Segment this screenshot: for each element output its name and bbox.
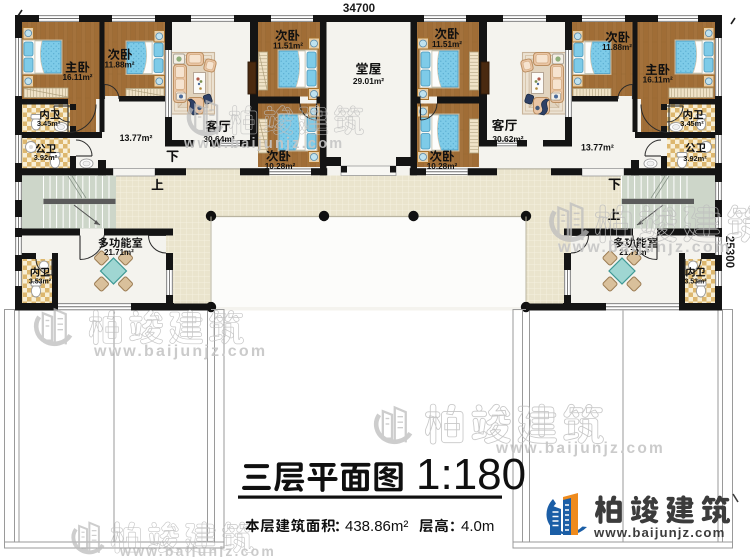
svg-text:13.77m²: 13.77m² [581, 143, 614, 153]
svg-text:3.45m²: 3.45m² [680, 119, 704, 128]
svg-text:13.77m²: 13.77m² [120, 133, 153, 143]
svg-text:3.92m²: 3.92m² [34, 153, 58, 162]
svg-text:www.baijunjz.com: www.baijunjz.com [593, 525, 725, 540]
svg-text:16.11m²: 16.11m² [643, 75, 673, 84]
svg-text:3.53m²: 3.53m² [684, 279, 707, 286]
svg-text:www.baijunjz.com: www.baijunjz.com [119, 543, 276, 557]
svg-text:3.53m²: 3.53m² [29, 279, 52, 286]
svg-text:29.01m²: 29.01m² [353, 76, 384, 86]
svg-text:3.92m²: 3.92m² [683, 154, 707, 163]
svg-text:30.62m²: 30.62m² [492, 134, 523, 144]
svg-text:10.28m²: 10.28m² [265, 162, 296, 171]
svg-text:11.51m²: 11.51m² [432, 40, 462, 49]
svg-text:11.51m²: 11.51m² [273, 42, 303, 51]
svg-text:34700: 34700 [343, 2, 375, 15]
svg-text:www.baijunjz.com: www.baijunjz.com [557, 239, 731, 256]
svg-text:16.11m²: 16.11m² [62, 73, 92, 82]
svg-text:10.28m²: 10.28m² [427, 162, 458, 171]
svg-text:www.baijunjz.com: www.baijunjz.com [93, 343, 267, 360]
svg-text:www.baijunjz.com: www.baijunjz.com [183, 136, 344, 152]
svg-text:1:180: 1:180 [416, 450, 526, 499]
svg-text:3.45m²: 3.45m² [37, 119, 61, 128]
svg-text:438.86m²: 438.86m² [345, 518, 408, 535]
svg-text:21.71m²: 21.71m² [104, 248, 134, 257]
svg-text:11.88m²: 11.88m² [104, 60, 134, 69]
svg-text:11.88m²: 11.88m² [602, 43, 632, 52]
svg-text:4.0m: 4.0m [461, 518, 494, 535]
